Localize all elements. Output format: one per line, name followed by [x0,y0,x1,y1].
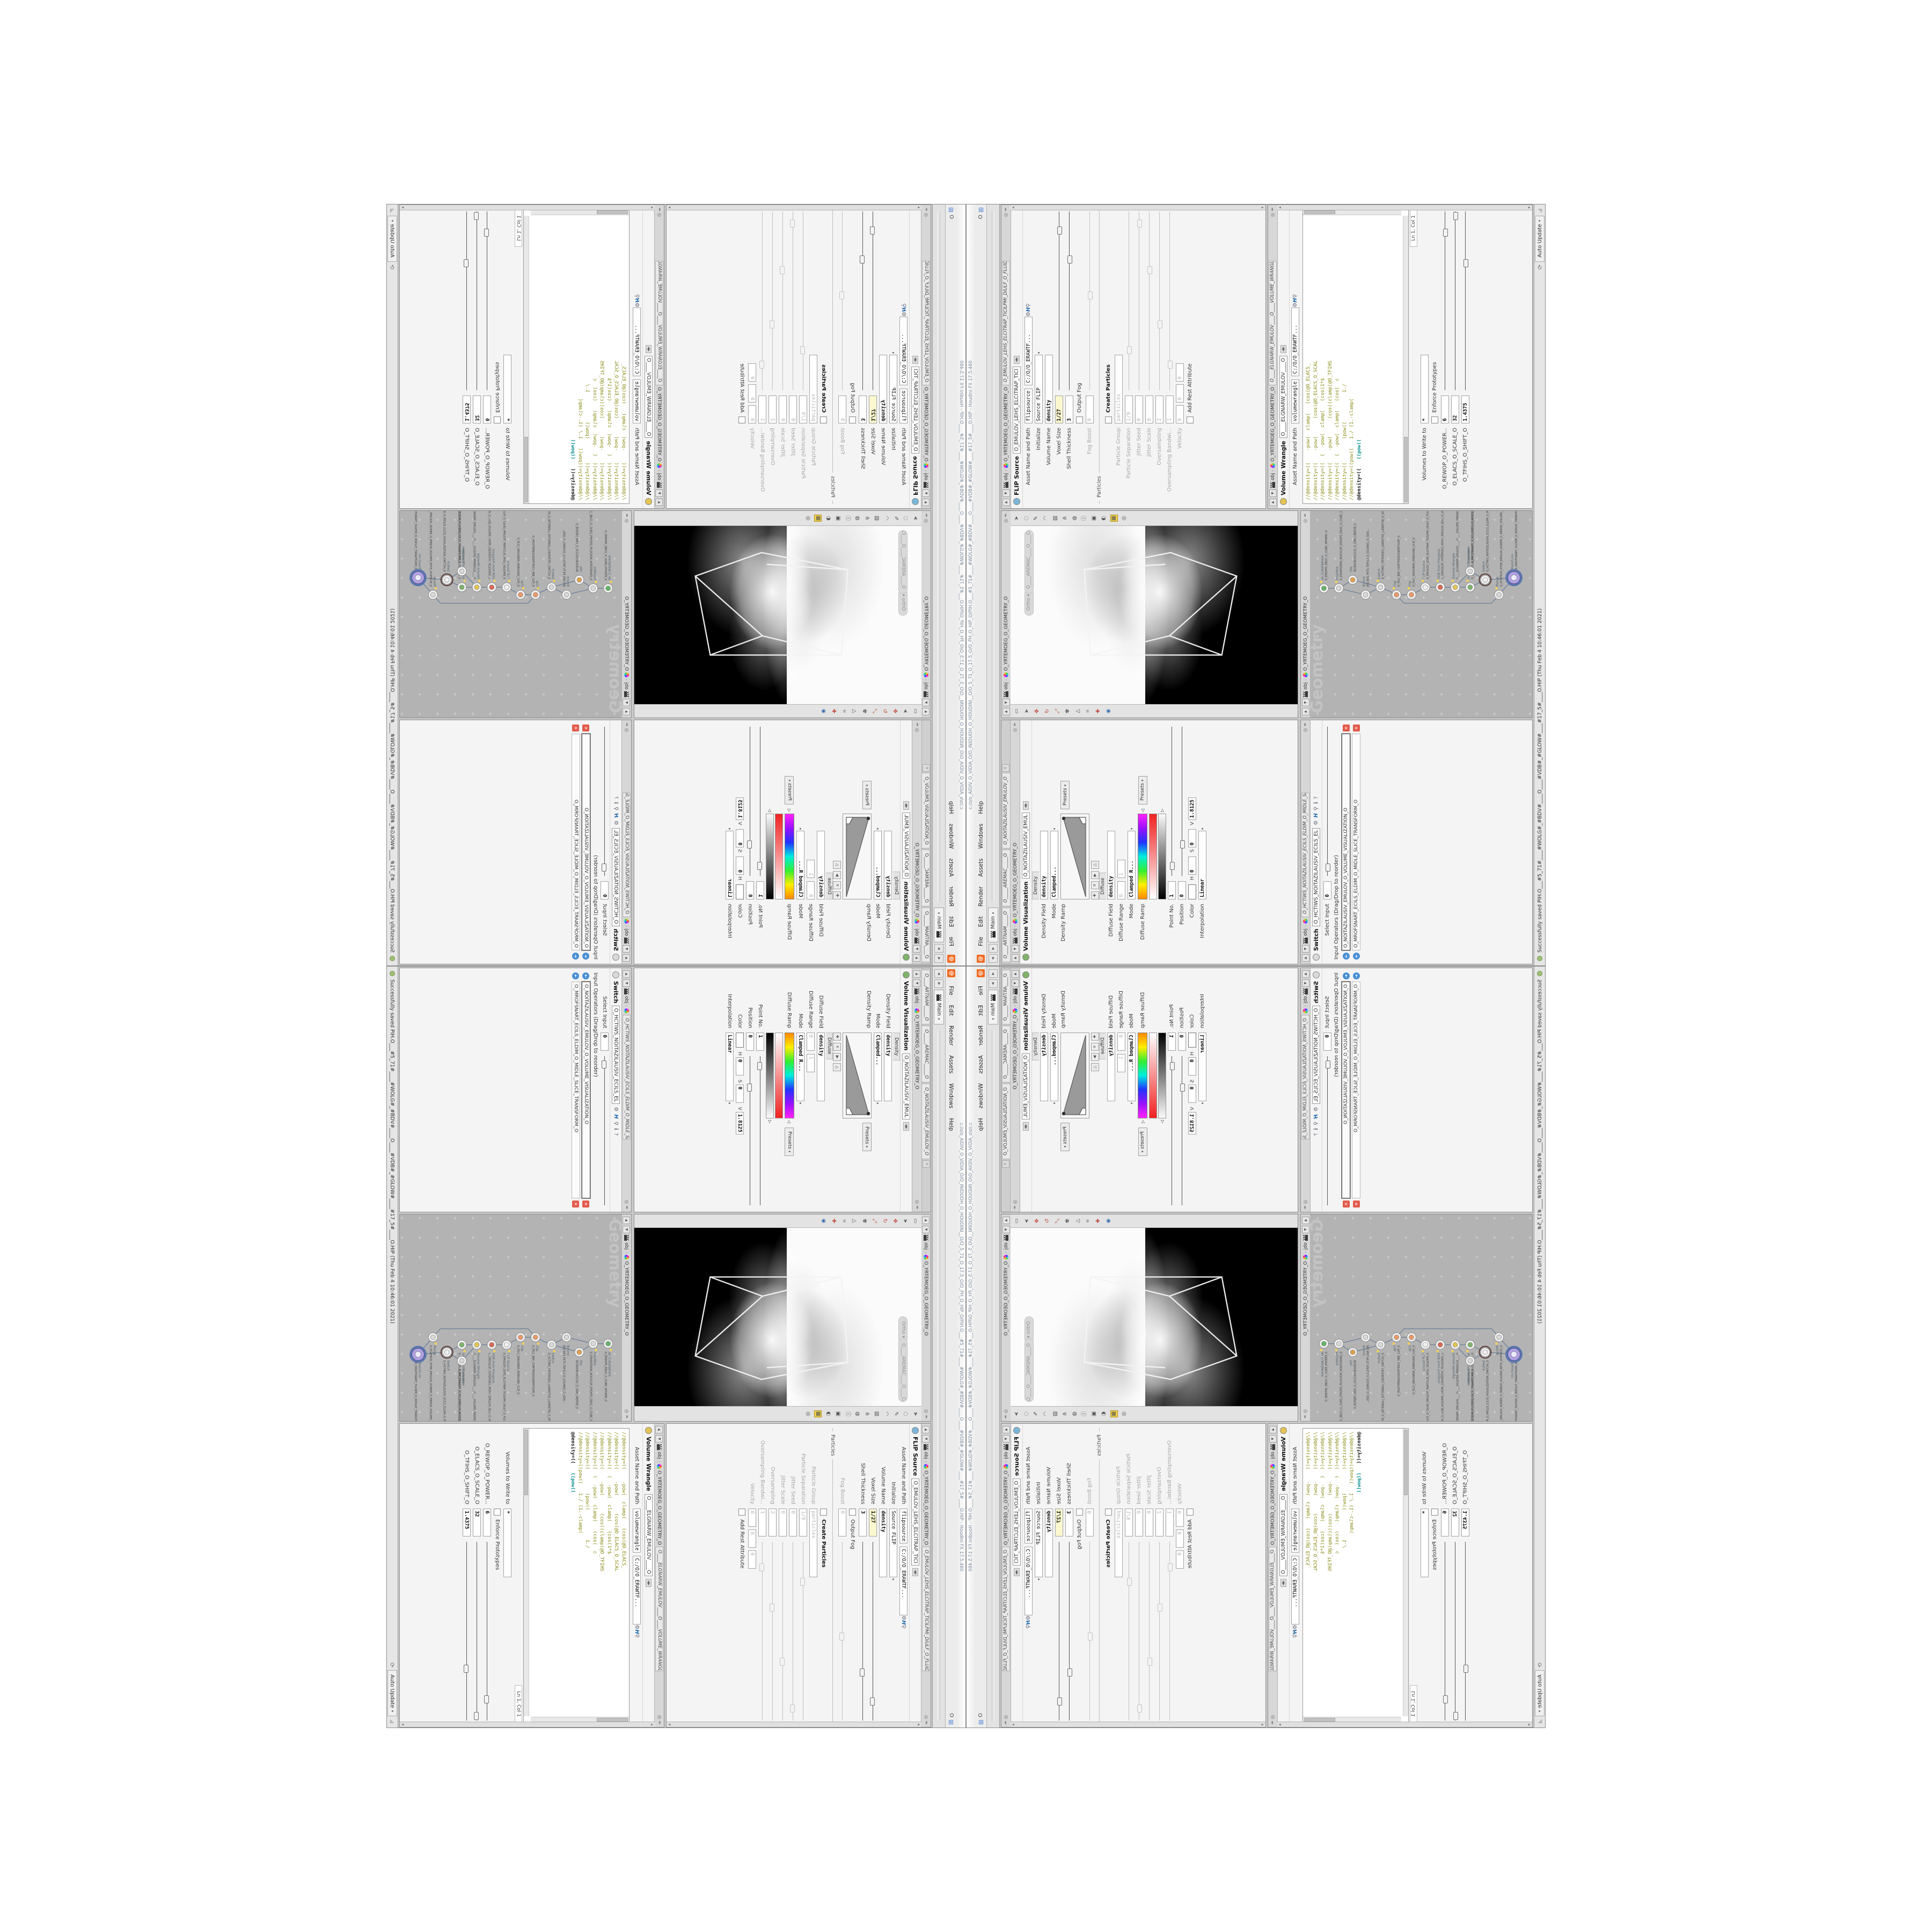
menu-item[interactable]: Render [978,1021,984,1050]
network-node[interactable]: ClipO_PILC_BJM_CGMTMGEOGJMBTGUM_O [531,536,540,599]
pane-tab-mantra[interactable]: O____ARTNAM_____O [922,908,930,962]
translate-tool-icon[interactable]: ✥ [1034,709,1041,713]
point-no-input[interactable]: 1 [756,881,764,899]
pane-tab-flip-source[interactable]: O_EMULOV_LEHS_ELCITRAP_TICILPMI_DIULF_O_… [1002,1547,1010,1671]
scale-slider[interactable] [1452,209,1459,390]
output-fog-checkbox[interactable] [1076,416,1083,423]
ramp-curve-icon[interactable]: ◠ [883,1411,889,1416]
ramp-curve-icon[interactable]: ◠ [1043,516,1049,521]
grid-display-icon[interactable]: ▦ [1110,1410,1118,1417]
radial-menu-icon[interactable]: ◎ [657,1715,662,1719]
network-node[interactable]: SwitchO_HCTIWS_YRTEMOEG_LANRETXE_LANRETN… [547,1340,556,1421]
node-name-field[interactable]: O____ELGNARW_EMULOV____O [1279,356,1287,438]
pin-icon[interactable]: ✒ [924,1721,929,1725]
spinner-icon[interactable]: ◀▶ [912,356,918,364]
voxel-size-slider[interactable] [869,1542,876,1723]
asset-path-field[interactable]: C:/O/O_ERAWTF... [1291,1556,1299,1624]
asset-name-field[interactable]: volumewrangle [1291,1509,1299,1553]
point-marker-button[interactable]: △ [833,861,841,869]
network-node[interactable]: MergeO_ECAFRUS_HTIW_EMULOV_EGREM_O_MERGE… [428,1333,437,1421]
nav-back-icon[interactable]: ▲ [923,1426,930,1433]
volumes-to-write-input[interactable]: * [503,1509,511,1577]
scale-slider[interactable] [1452,1542,1459,1723]
viewport-canvas[interactable]: Ortho ▾ O____AREMAC____O____CAM... [1011,1228,1298,1406]
menu-item[interactable]: Render [948,1021,955,1050]
radial-menu-icon[interactable]: ◎ [624,728,630,733]
jitter-scale-input[interactable]: 0 [1145,1509,1153,1536]
pane-tab-switch[interactable]: O_HCTIWS_NOITAZILAUSIV_ECILS_ELDIM_O_MID… [1301,793,1309,917]
network-node[interactable]: TransformO_MROFSNART_TLUSER_O_RESULT_TRA… [409,1346,427,1421]
diffuse-mode-dropdown[interactable]: Clamped R... [1128,831,1136,899]
menu-item[interactable]: Edit [948,911,955,932]
ramp-marker-icon[interactable]: ▷ [1160,809,1165,812]
scale-input[interactable]: 32 [473,1509,481,1536]
nav-forward-icon[interactable]: ▼ [1302,699,1309,706]
particle-separation-input[interactable]: 1/9 [1125,396,1133,423]
point-no-slider[interactable] [757,1056,764,1207]
auto-update-selector[interactable]: Auto Update ▾ [1535,216,1545,262]
scale-tool-icon[interactable]: ⤢ [1055,1219,1061,1223]
input-operator-row[interactable]: ➜ O_MROFSNART_ECILS_ELDIM_O_MIDLE_SLICE_… [1351,972,1361,1207]
pane-tab-camera[interactable]: O_____AREMAC_____O [922,850,930,906]
oversampling-slider[interactable] [769,1542,776,1723]
breadcrumb-network[interactable]: O_YRTEMOEG_O_GEOMETRY_O [624,596,630,671]
breadcrumb-network[interactable]: O_YRTEMOEG_O_GEOMETRY_O [1303,1261,1308,1336]
shade-mode-icon[interactable]: ◐ [825,1411,831,1416]
radial-menu-icon[interactable]: ◎ [1013,1200,1018,1204]
nav-back-icon[interactable]: ▲ [1269,1426,1277,1433]
pane-tab-switch[interactable]: O_HCTIWS_NOITAZILAUSIV_ECILS_ELDIM_O_MID… [623,793,631,917]
breadcrumb[interactable]: obj [657,473,662,480]
particle-separation-slider[interactable] [800,1542,807,1723]
v-input[interactable]: 1.8125 [1188,1112,1196,1135]
presets-button[interactable]: Presets▾ [1138,1128,1147,1156]
shell-thickness-slider[interactable] [1066,1542,1073,1723]
radial-menu-icon[interactable]: ◎ [1270,1715,1276,1719]
pose-tool-icon[interactable]: △ [851,1219,857,1223]
velocity-z-input[interactable]: 0 [1176,1550,1184,1569]
asset-path-field[interactable]: C:/O/O_ERAWTF... [900,317,908,385]
breadcrumb[interactable]: obj [624,1242,630,1250]
add-point-button[interactable]: ✚ [1091,1033,1099,1041]
camera-selector[interactable]: O____AREMAC____O____CAM... [1024,1338,1034,1402]
density-group-tab[interactable]: Density [1032,1033,1039,1060]
snap-center-icon[interactable]: ◉ [1106,709,1112,714]
grid-display-icon[interactable]: ▦ [814,1410,822,1417]
volume-name-input[interactable]: density [1045,355,1053,423]
menu-item[interactable]: Assets [978,1050,984,1078]
interpolation-dropdown[interactable]: Linear [726,831,734,899]
menu-item[interactable]: Help [978,796,984,819]
breadcrumb[interactable]: obj [924,473,929,480]
diffuse-range-min-input[interactable]: 0 [807,1033,815,1051]
select-input-field[interactable]: 0 [601,881,609,899]
vex-code[interactable]: //@density=(( -pow( clamp( (cos(@O_ELACS… [523,1428,630,1723]
ramp-marker-icon[interactable]: ▷ [767,809,772,812]
node-name-field[interactable]: O_HCTIWS_NOITAZILAUSIV_ECILS_EL [1312,1006,1320,1104]
view-tool-icon[interactable]: ▭ [1014,708,1020,713]
menu-item[interactable]: Edit [948,1000,955,1021]
input-operator-name[interactable]: O_MROFSNART_ECILS_ELDIM_O_MIDLE_SLICE_TR… [1352,982,1360,1198]
nav-forward-icon[interactable]: ▼ [623,945,631,953]
pane-scrollbar[interactable]: ▲▼ [667,205,921,210]
spinner-icon[interactable]: ◀▶ [646,345,652,353]
spinner-icon[interactable]: ◀▶ [646,1579,652,1587]
network-node[interactable]: FileBU(B)UB(9)G(2)G_O_GBN_UBJ9UB_O [1348,1348,1357,1409]
pin-icon[interactable]: ✒ [624,513,630,517]
diffuse-group-tab[interactable]: Diffuse [826,1033,833,1059]
gear-icon[interactable]: ⚙ [1313,1107,1319,1111]
network-node[interactable]: MergeO_ECAFRUS_HTIW_EMULOV_EGREM_O_MERGE… [1495,511,1504,599]
vex-editor[interactable]: //@density=(( -pow( clamp( (cos(@O_ELACS… [523,209,630,504]
velocity-y-input[interactable]: 0 [748,1529,756,1548]
network-node[interactable]: FileBU(B)UB(9)G(2)G_O_GBN_UBJ9UB_O [575,523,584,584]
oversampling-bandwidth-slider[interactable] [1166,1542,1173,1723]
rotate-tool-icon[interactable]: ↻ [881,1219,888,1223]
output-fog-checkbox[interactable] [849,1509,856,1516]
color-preview-bar-red[interactable] [775,814,783,899]
takes-next-button[interactable]: ▶ [989,944,998,953]
breadcrumb[interactable]: obj [914,928,920,936]
pin-icon[interactable]: ✒ [1004,1721,1009,1725]
pane-tab-camera[interactable]: O_____AREMAC_____O [1002,1026,1010,1082]
network-node[interactable]: VDB from PolygonsO_SNOGLOP_YRTEMOEG_MORF… [1436,1340,1445,1421]
breadcrumb[interactable]: obj [1004,682,1009,690]
nav-back-icon[interactable]: ▲ [923,1217,930,1224]
network-node[interactable]: TransformO_MROFSNART_TLUSER_O_RESULT_TRA… [409,511,427,586]
diffuse-group-tab[interactable]: Diffuse [1099,873,1106,899]
node-name-field[interactable]: O_NOITAZILAUSIV_EMUL [1022,813,1030,879]
pin-icon[interactable]: ✒ [914,1205,920,1210]
nav-forward-icon[interactable]: ▼ [923,699,930,706]
auto-update-selector[interactable]: Auto Update ▾ [387,216,397,262]
takes-prev-button[interactable]: ◀ [989,969,998,978]
gear-icon[interactable]: ⚙ [1026,312,1031,317]
diffuse-group-tab[interactable]: Diffuse [1099,1033,1106,1059]
nav-forward-icon[interactable]: ▼ [923,489,930,497]
shift-slider[interactable] [1462,1542,1469,1723]
breadcrumb-network[interactable]: O_YRTEMOEG_O_GEOMETRY_O [1004,387,1009,462]
point-no-slider[interactable] [757,724,764,876]
breadcrumb[interactable]: obj [1303,996,1308,1004]
position-slider[interactable] [1179,724,1185,876]
position-input[interactable]: 0 [746,881,754,899]
info-icon[interactable]: ⓘ [1081,516,1088,521]
oversampling-input[interactable]: 2 [769,396,777,423]
group-box-icon[interactable]: ▧ [1052,516,1059,521]
oversampling-bandwidth-input[interactable]: 1 [1166,1509,1174,1536]
oversampling-input[interactable]: 2 [769,1509,777,1536]
gear-icon[interactable]: ⚙ [1292,1624,1298,1629]
jitter-scale-slider[interactable] [1146,1542,1153,1723]
pane-layout-icon[interactable]: ⊞ [948,1719,955,1725]
delete-point-button[interactable]: ✕ [833,1043,841,1051]
input-operator-row[interactable]: ➜ O_NOITAZILAUSIV_EMULOV_O_VOLUME_VISUAL… [581,972,591,1207]
nav-back-icon[interactable]: ▲ [1002,499,1010,506]
node-name-field[interactable]: O_NOITAZILAUSIV_EMUL [902,813,910,879]
mode-dropdown[interactable]: Clamped... [874,1033,882,1101]
nav-forward-icon[interactable]: ▼ [623,699,631,706]
pin-icon[interactable]: ✒ [924,207,929,211]
input-operator-name[interactable]: O_NOITAZILAUSIV_EMULOV_O_VOLUME_VISUALIZ… [1342,734,1350,950]
camera-selector[interactable]: O____AREMAC____O____CAM... [898,530,908,594]
menu-item[interactable]: File [978,981,984,1000]
gear-icon[interactable]: ⚙ [634,303,640,308]
pin-icon[interactable]: ✒ [624,722,630,727]
network-node[interactable]: TransformO_MROFSNART_TLUSER_O_RESULT_TRA… [1505,1346,1523,1421]
breadcrumb[interactable]: obj [1270,1452,1276,1459]
resize-grip-icon[interactable]: ◢ [390,209,396,213]
enforce-prototypes-checkbox[interactable] [494,1509,501,1516]
snap-grid-icon[interactable]: ⌗ [1085,709,1092,713]
color-preview-bar-bw[interactable] [1158,1033,1166,1118]
velocity-z-input[interactable]: 0 [748,363,756,382]
presets-button[interactable]: Presets▾ [1138,776,1147,804]
delete-point-button[interactable]: ✕ [833,881,841,889]
shell-thickness-input[interactable]: 3 [859,396,867,423]
breadcrumb[interactable]: obj [1270,473,1276,480]
presets-button[interactable]: Presets▾ [862,781,872,809]
jitter-seed-input[interactable]: 0 [1135,1509,1143,1536]
volumes-to-write-input[interactable]: * [503,355,511,423]
menu-item[interactable]: Windows [978,1078,984,1113]
gear-icon[interactable]: ⚙ [613,1107,619,1111]
pane-tab-mantra[interactable]: O____ARTNAM_____O [1002,908,1010,962]
presets-button[interactable]: Presets▾ [862,1123,872,1151]
nav-back-icon[interactable]: ▲ [1302,970,1309,978]
remove-input-icon[interactable]: ✕ [1343,724,1350,731]
density-ramp-widget[interactable] [1060,1033,1089,1118]
pin-icon[interactable]: ✒ [1004,207,1009,211]
nav-forward-icon[interactable]: ▼ [623,979,631,987]
asset-name-field[interactable]: volumewrangle [1291,379,1299,423]
pin-icon[interactable]: ✒ [1013,722,1018,727]
density-ramp-widget[interactable] [1060,814,1089,899]
input-operator-row[interactable]: ➜ O_MROFSNART_ECILS_ELDIM_O_MIDLE_SLICE_… [571,972,581,1207]
pose-tool-icon[interactable]: △ [851,709,857,713]
vex-editor[interactable]: //@density=(( -pow( clamp( (cos(@O_ELACS… [1302,1428,1409,1723]
power-input[interactable]: 6 [483,396,491,423]
close-icon[interactable]: ✕ [923,1160,930,1168]
particles-separator[interactable]: Particles [829,205,837,508]
position-slider[interactable] [747,1056,753,1207]
h-input[interactable]: 0 [1188,1057,1196,1075]
diffuse-range-max-input[interactable]: 1 [1117,1054,1125,1072]
breadcrumb-network[interactable]: O_YRTEMOEG_O_GEOMETRY_O [924,1261,929,1336]
auto-update-selector[interactable]: Auto Update ▾ [1535,1670,1545,1716]
s-input[interactable]: 0 [1188,1085,1196,1103]
translate-tool-icon[interactable]: ✥ [1034,1219,1041,1223]
asset-name-field[interactable]: flipsource [900,389,908,423]
nav-forward-icon[interactable]: ▼ [913,979,921,987]
color-preview-bar-red[interactable] [1149,814,1157,899]
close-icon[interactable]: ✕ [923,764,930,772]
spinner-icon[interactable]: ◀▶ [912,1568,918,1576]
network-canvas[interactable]: + + + + + + + + + + + + + + + + + + + + … [1310,511,1532,718]
select-input-field[interactable]: 0 [1323,881,1331,899]
secure-select-icon[interactable]: ➤ [912,516,918,520]
menu-item[interactable]: Render [978,882,984,911]
network-node[interactable]: ClipO_PILC_BJM_CGMTMGEOGJMBTGUM_O [531,1333,540,1396]
network-node[interactable]: MergeO_ECAFRUS_HTIW_EMULOV_EGREM_O_MERGE… [428,511,437,599]
select-tool-icon[interactable]: ➤ [1024,1219,1030,1223]
s-input[interactable]: 0 [736,830,744,848]
pane-tab-camera[interactable]: O_____AREMAC_____O [922,1026,930,1082]
particles-separator[interactable]: Particles [1095,1424,1103,1727]
node-name-field[interactable]: O____ELGNARW_EMULOV____O [1279,1494,1287,1577]
h-input[interactable]: 0 [736,1057,744,1075]
nav-back-icon[interactable]: ▲ [1302,708,1309,715]
view-tool-icon[interactable]: ▭ [912,1218,918,1223]
vex-code[interactable]: //@density=(( -pow( clamp( (cos(@O_ELACS… [1302,1428,1409,1723]
jitter-seed-input[interactable]: 0 [789,1509,797,1536]
wire-sphere-icon[interactable]: ◍ [1072,1411,1078,1416]
breadcrumb[interactable]: obj [1013,928,1018,936]
menu-item[interactable]: Assets [948,1050,955,1078]
scale-tool-icon[interactable]: ⤢ [871,1219,877,1223]
node-name-field[interactable]: O_EMULOV_LEHS_ELCITRAP_TICI [1013,367,1021,453]
network-node[interactable]: SwitchO_HCTIWS_YRTEMOEG_LANRETXE_LANRETN… [1376,1340,1385,1421]
brush-icon[interactable]: ✎ [1033,1411,1040,1416]
asset-path-field[interactable]: C:/O/O_ERAWTF... [1291,308,1299,376]
pane-tab-volume-wrangle[interactable]: O____ELGNARW_EMULOV____O____VOLUME_WRANG… [655,261,663,385]
voxel-size-slider[interactable] [869,209,876,390]
point-no-input[interactable]: 1 [1168,1033,1176,1051]
group-box-icon[interactable]: ▧ [1052,1411,1059,1416]
asset-name-field[interactable]: flipsource [1024,1509,1033,1543]
network-node[interactable]: SwitchO_HCTIWS_NOITAZILAUSIV_ECILS_ELDIM… [441,511,453,586]
info-icon[interactable]: ℹ [1313,1128,1319,1130]
asset-path-field[interactable]: C:/O/O_ERAWTF... [1024,317,1033,385]
snapshot-icon[interactable]: ▣ [835,516,841,521]
ramp-marker-icon[interactable]: ▷ [1160,1120,1165,1123]
rotate-tool-icon[interactable]: ↻ [1044,709,1051,713]
particles-separator[interactable]: Particles [829,1424,837,1727]
breadcrumb-network[interactable]: O_YRTEMOEG_O_GEOMETRY_O [1013,1015,1018,1089]
nav-forward-icon[interactable]: ▼ [656,489,663,497]
breadcrumb-network[interactable]: O_YRTEMOEG_O_GEOMETRY_O [924,387,929,462]
diffuse-mode-dropdown[interactable]: Clamped R... [1128,1033,1136,1101]
diffuse-range-min-input[interactable]: 0 [1117,881,1125,899]
network-node[interactable]: BoundJRD.N01.P4TS.T6P1LS.O_5GUN6G_O_GEN.… [562,1333,571,1403]
snap-grid-icon[interactable]: ⌗ [840,1219,847,1223]
prev-point-button[interactable]: ▶ [1091,1053,1099,1061]
diffuse-mode-dropdown[interactable]: Clamped R... [796,1033,804,1101]
magnifier-icon[interactable]: ⚲ [1292,294,1298,298]
power-slider[interactable] [484,1542,491,1723]
vex-editor[interactable]: //@density=(( -pow( clamp( (cos(@O_ELACS… [1302,209,1409,504]
refresh-icon[interactable]: ⟳ [1536,1663,1543,1667]
shade-mode-icon[interactable]: ◐ [1101,1411,1107,1416]
lasso-select-icon[interactable]: ◌ [1023,516,1030,521]
breadcrumb[interactable]: obj [624,928,630,936]
snap-center-icon[interactable]: ◉ [820,709,826,714]
handles-tool-icon[interactable]: ✾ [861,709,867,713]
point-no-slider[interactable] [1168,1056,1175,1207]
remove-input-icon[interactable]: ✕ [583,1201,590,1207]
shell-thickness-slider[interactable] [859,209,866,390]
takes-next-button[interactable]: ▶ [989,979,998,988]
position-input[interactable]: 0 [746,1033,754,1051]
breadcrumb[interactable]: obj [1004,1242,1009,1250]
resize-grip-icon[interactable]: ◢ [1537,1719,1543,1723]
initialize-dropdown[interactable]: Source FLIP [889,1509,897,1577]
network-node[interactable]: ae_CubeSphereO_EREHPS_EBUC_O_CUBE_SPHERE… [604,530,613,593]
diffuse-range-max-input[interactable]: 1 [807,1054,815,1072]
velocity-x-input[interactable]: 0 [1176,1509,1184,1527]
jitter-seed-slider[interactable] [789,209,796,390]
node-name-field[interactable]: O_HCTIWS_NOITAZILAUSIV_ECILS_EL [612,828,620,926]
breadcrumb[interactable]: obj [1004,1452,1009,1459]
select-input-field[interactable]: 0 [601,1033,609,1051]
radial-menu-icon[interactable]: ◎ [624,1409,630,1414]
pin-icon[interactable]: ✒ [1270,207,1276,211]
color-preview-bar-bw[interactable] [1158,814,1166,899]
asset-name-field[interactable]: volumewrangle [633,379,641,423]
input-arrow-icon[interactable]: ➜ [1343,972,1350,979]
snapshot-icon[interactable]: ▣ [1091,516,1097,521]
breadcrumb[interactable]: obj [924,1242,929,1250]
shift-input[interactable]: 1.4375 [463,1509,471,1536]
pane-tab-mantra[interactable]: O____ARTNAM_____O [1002,970,1010,1024]
breadcrumb[interactable]: obj [624,996,630,1004]
fog-boost-slider[interactable] [839,1542,846,1723]
pin-icon[interactable]: ✒ [1004,513,1009,517]
info-icon[interactable]: ℹ [613,1128,619,1130]
voxel-size-input[interactable]: 1/27 [869,1509,877,1536]
asset-path-field[interactable]: C:/O/O_ERAWTF... [1024,1547,1033,1615]
vex-hscrollbar[interactable] [1403,216,1408,503]
shift-input[interactable]: 1.4375 [463,396,471,423]
network-node[interactable]: Volume WrangleO____ELGNARW_EMULOV____O__… [472,511,481,592]
vex-code[interactable]: //@density=(( -pow( clamp( (cos(@O_ELACS… [523,209,630,504]
menu-item[interactable]: Edit [978,1000,984,1021]
take-selector[interactable]: Main ▾ [988,908,998,942]
menu-item[interactable]: Edit [978,911,984,932]
pane-tab-switch[interactable]: O_HCTIWS_NOITAZILAUSIV_ECILS_ELDIM_O_MID… [623,1015,631,1139]
network-node[interactable]: Volume WrangleO____ELGNARW_EMULOV____O__… [472,1340,481,1421]
presets-button[interactable]: Presets▾ [1060,1123,1070,1151]
node-name-field[interactable]: O_EMULOV_LEHS_ELCITRAP_TICI [1013,1479,1021,1565]
velocity-z-input[interactable]: 0 [748,1550,756,1569]
nav-back-icon[interactable]: ▲ [656,499,663,506]
takes-next-button[interactable]: ▶ [934,979,943,988]
pane-scrollbar[interactable]: ▲▼ [400,205,655,210]
viewport-canvas[interactable]: Ortho ▾ O____AREMAC____O____CAM... [1011,526,1298,704]
close-icon[interactable]: ✕ [1002,1160,1009,1168]
input-operator-name[interactable]: O_MROFSNART_ECILS_ELDIM_O_MIDLE_SLICE_TR… [1352,734,1360,950]
fog-boost-slider[interactable] [1086,209,1093,390]
network-node[interactable]: SwitchO_HCTIWS_YRTEMOEG_LANRETXE_LANRETN… [1376,511,1385,592]
pane-layout-icon[interactable]: ⊞ [977,207,985,213]
secure-select-icon[interactable]: ➤ [1014,1411,1020,1416]
ramp-marker-icon[interactable]: ◁ [787,1120,792,1123]
viewport-canvas[interactable]: Ortho ▾ O____AREMAC____O____CAM... [634,1228,921,1406]
shift-slider[interactable] [463,1542,470,1723]
scale-input[interactable]: 32 [473,396,481,423]
density-field-input[interactable]: density [1040,1033,1048,1101]
presets-button[interactable]: Presets▾ [785,1128,794,1156]
color-swatch[interactable] [1188,884,1196,899]
input-arrow-icon[interactable]: ➜ [1343,953,1350,960]
h-input[interactable]: 0 [736,857,744,875]
prev-point-button[interactable]: ▶ [1091,871,1099,879]
create-particles-checkbox[interactable] [1105,1509,1112,1516]
power-input[interactable]: 6 [1441,396,1449,423]
scale-input[interactable]: 32 [1451,396,1459,423]
diffuse-ramp-widget[interactable] [785,1033,794,1118]
snap-grid-icon[interactable]: ⌗ [1085,1219,1092,1223]
